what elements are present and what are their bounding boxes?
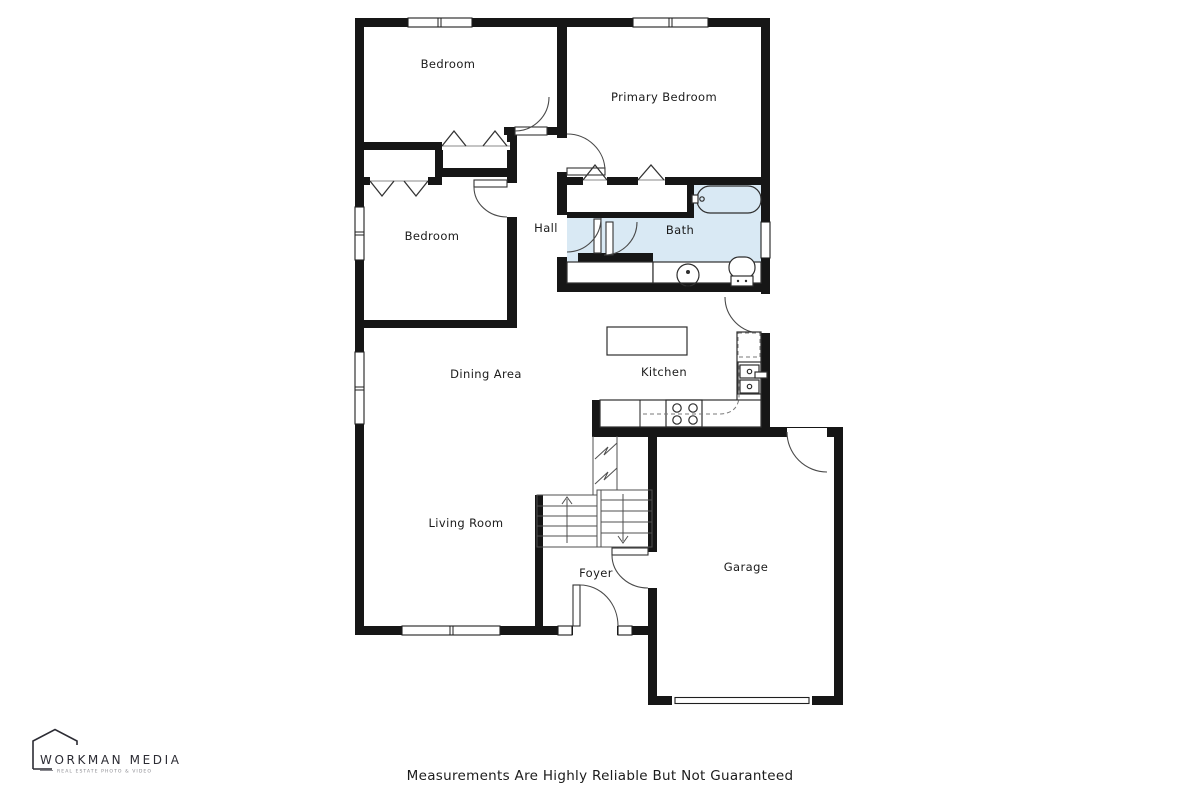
floorplan-svg: Bedroom Primary Bedroom Bedroom Hall Bat… (0, 0, 1200, 805)
brand-logo: WORKMAN MEDIA REAL ESTATE PHOTO & VIDEO (33, 730, 182, 775)
window-bath (761, 222, 770, 258)
stairs (537, 436, 652, 547)
exterior-walls (355, 18, 843, 705)
label-bath: Bath (666, 223, 694, 237)
label-garage: Garage (724, 560, 769, 574)
window-dining (355, 352, 364, 424)
door-primary-bedroom (567, 134, 605, 175)
floorplan-page: Bedroom Primary Bedroom Bedroom Hall Bat… (0, 0, 1200, 805)
door-front-entry (573, 585, 618, 626)
window-primary-bedroom (633, 18, 708, 27)
brand-name: WORKMAN MEDIA (40, 753, 182, 767)
stair-run-down (597, 490, 652, 547)
front-door-sidelite-left (558, 626, 572, 635)
label-bedroom-top: Bedroom (421, 57, 476, 71)
label-kitchen: Kitchen (641, 365, 687, 379)
label-living: Living Room (429, 516, 504, 530)
stair-run-up (537, 495, 597, 547)
interior-walls (364, 27, 770, 635)
garage-door (672, 696, 812, 705)
window-bedroom-left (355, 207, 364, 260)
front-door-sidelite-right (618, 626, 632, 635)
toilet (729, 257, 755, 286)
stair-break-mark (595, 443, 617, 459)
label-foyer: Foyer (579, 566, 613, 580)
stair-break-mark (595, 468, 617, 484)
door-foyer-garage (612, 548, 648, 588)
window-living (402, 626, 500, 635)
kitchen-island (607, 327, 687, 355)
label-primary-bedroom: Primary Bedroom (611, 90, 717, 104)
room-labels: Bedroom Primary Bedroom Bedroom Hall Bat… (405, 57, 769, 580)
disclaimer-text: Measurements Are Highly Reliable But Not… (407, 768, 794, 784)
label-hall: Hall (534, 221, 558, 235)
window-bedroom-top (408, 18, 472, 27)
door-bedroom-top (515, 97, 549, 135)
label-bedroom-left: Bedroom (405, 229, 460, 243)
linen-closet (567, 262, 653, 283)
brand-tagline: REAL ESTATE PHOTO & VIDEO (57, 769, 152, 775)
door-bedroom-left (474, 180, 507, 217)
label-dining: Dining Area (450, 367, 522, 381)
closet-doors (370, 131, 665, 196)
door-kitchen-rear (725, 297, 761, 333)
